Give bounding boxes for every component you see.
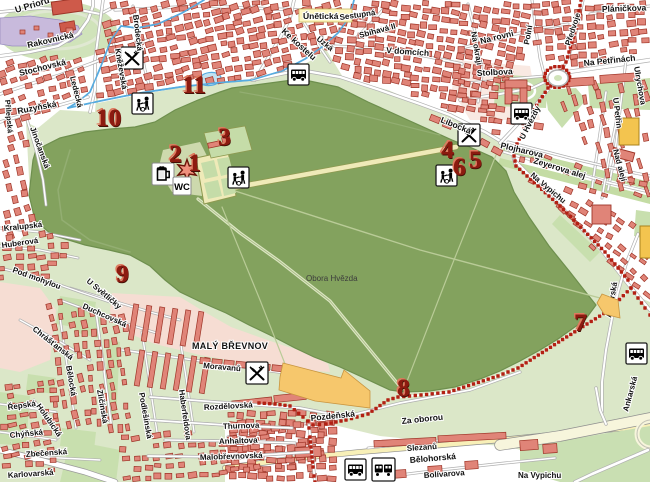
svg-text:5: 5 bbox=[470, 147, 483, 174]
svg-text:Thurnova: Thurnova bbox=[223, 421, 260, 431]
svg-text:2: 2 bbox=[170, 141, 183, 168]
svg-text:Obora Hvězda: Obora Hvězda bbox=[306, 274, 358, 283]
svg-text:10: 10 bbox=[97, 105, 122, 132]
svg-text:11: 11 bbox=[183, 72, 207, 99]
svg-text:7: 7 bbox=[575, 310, 588, 337]
svg-text:8: 8 bbox=[398, 375, 411, 402]
svg-text:WC: WC bbox=[174, 182, 190, 193]
svg-text:3: 3 bbox=[219, 124, 232, 151]
svg-text:Na Vypichu: Na Vypichu bbox=[518, 471, 561, 480]
svg-text:Anhaltova: Anhaltova bbox=[219, 436, 259, 446]
svg-text:Stolbova: Stolbova bbox=[477, 66, 514, 78]
svg-text:9: 9 bbox=[117, 261, 130, 288]
svg-text:1: 1 bbox=[189, 150, 202, 177]
svg-text:MALÝ BŘEVNOV: MALÝ BŘEVNOV bbox=[192, 340, 268, 351]
svg-text:Pláničkova: Pláničkova bbox=[602, 2, 647, 14]
svg-text:Únětická: Únětická bbox=[303, 10, 339, 21]
svg-text:6: 6 bbox=[454, 154, 467, 181]
